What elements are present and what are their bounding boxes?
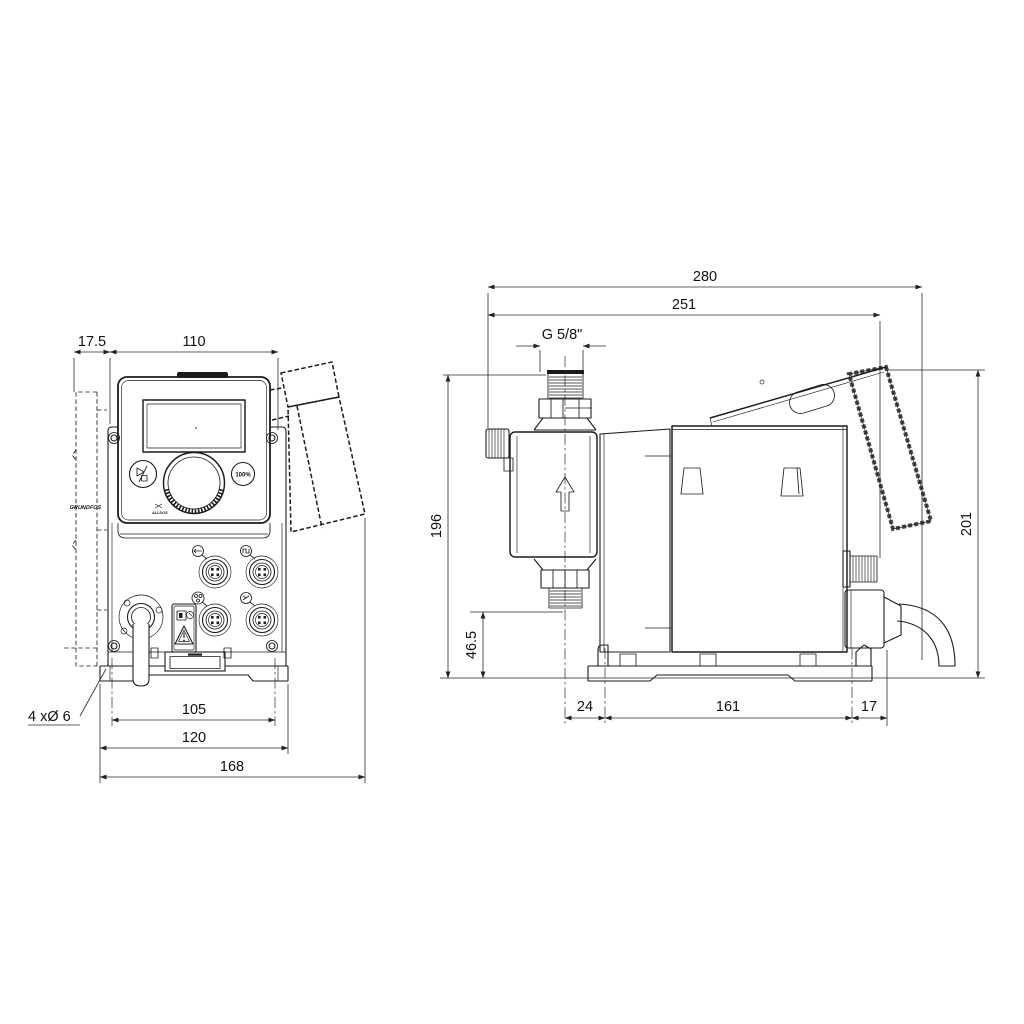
m12-connector (199, 556, 231, 588)
adapter-section (598, 429, 671, 666)
top-tab (177, 372, 228, 378)
dosing-head (510, 432, 597, 557)
dim-depth-label: 251 (672, 297, 696, 313)
m12-connector (199, 604, 231, 636)
analog-input-icon (193, 546, 208, 560)
pulse-input-icon (241, 546, 256, 560)
hole-callout: 4 xØ 6 (28, 669, 106, 725)
side-dimensions: 280 251 G 5/8" 196 46.5 24 (429, 269, 985, 726)
cable-front (133, 624, 149, 686)
cable-side (897, 604, 955, 666)
dim-height: 196 (429, 375, 448, 678)
dim-panel-height-label: 201 (959, 512, 975, 536)
dim-panel-height: 201 (959, 370, 978, 678)
dim-hole-spacing-h-label: 105 (182, 702, 206, 718)
dim-thread-label: G 5/8" (542, 327, 583, 343)
wall-plate-phantom (63, 392, 107, 666)
dim-rear-offset: 17 (852, 699, 887, 718)
drawing-sheet: 100% GRUNDFOS ALLDOS (0, 0, 1024, 1024)
brand-text: GRUNDFOS (69, 505, 101, 511)
m12-connector (246, 556, 278, 588)
dim-hole-spacing: 161 (605, 699, 852, 718)
dim-offset: 17.5 (74, 334, 110, 352)
dim-hole-spacing-label: 161 (716, 699, 740, 715)
screw-icon (267, 433, 278, 444)
motor-housing (672, 426, 871, 666)
bottom-nut (541, 570, 589, 588)
dim-thread: G 5/8" (516, 327, 606, 346)
screw-icon (267, 641, 278, 652)
click-wheel (164, 453, 225, 514)
wheel-side-slot (787, 382, 837, 416)
cable-gland-side (845, 590, 955, 666)
m12-connector (246, 604, 278, 636)
technical-drawing: 100% GRUNDFOS ALLDOS (0, 0, 1024, 1024)
dim-overall-width: 168 (100, 759, 365, 777)
side-view: 280 251 G 5/8" 196 46.5 24 (429, 269, 985, 726)
display (143, 400, 245, 452)
dim-plate-width-label: 120 (182, 730, 206, 746)
dim-front-offset: 24 (565, 699, 605, 718)
io-connectors (192, 546, 278, 637)
dim-valve-height: 46.5 (464, 612, 483, 678)
dim-overall-width-label: 168 (220, 759, 244, 775)
bottom-thread (549, 588, 582, 608)
brand-sub-text: ALLDOS (151, 511, 168, 515)
manual-icon (177, 611, 194, 620)
front-view: 100% GRUNDFOS ALLDOS (28, 334, 365, 783)
vent-valve-knob (486, 429, 513, 471)
dim-overall-depth-label: 280 (693, 269, 717, 285)
max-button-label: 100% (235, 473, 251, 479)
cable-gland-front (119, 595, 163, 686)
corner-screws (109, 433, 278, 652)
output-icon (241, 593, 256, 607)
dim-valve-height-label: 46.5 (464, 631, 480, 659)
panel-hatched-edge (849, 367, 931, 529)
dim-hole-spacing-h: 105 (112, 702, 275, 720)
play-stop-icon (137, 466, 147, 482)
tilted-control-panel (710, 367, 931, 529)
control-panel: 100% GRUNDFOS ALLDOS (69, 372, 270, 538)
screw-icon (109, 641, 120, 652)
hole-callout-label: 4 xØ 6 (28, 709, 71, 725)
mains-connector (843, 551, 877, 587)
dim-front-offset-label: 24 (577, 699, 593, 715)
dim-width: 110 (110, 334, 278, 352)
mounting-hooks (681, 468, 803, 496)
start-stop-button (130, 461, 157, 488)
top-thread (548, 374, 583, 399)
warning-triangle-icon (175, 626, 193, 644)
dim-height-label: 196 (429, 514, 445, 538)
control-cube-phantom (270, 362, 365, 532)
warning-label (172, 604, 196, 652)
dim-offset-label: 17.5 (78, 334, 106, 350)
max-button: 100% (232, 463, 255, 486)
dim-overall-depth: 280 (488, 269, 922, 287)
dim-width-label: 110 (182, 334, 205, 350)
dim-depth: 251 (488, 297, 880, 315)
dim-plate-width: 120 (100, 730, 288, 748)
dim-rear-offset-label: 17 (861, 699, 877, 715)
base-plate-side (588, 654, 872, 681)
